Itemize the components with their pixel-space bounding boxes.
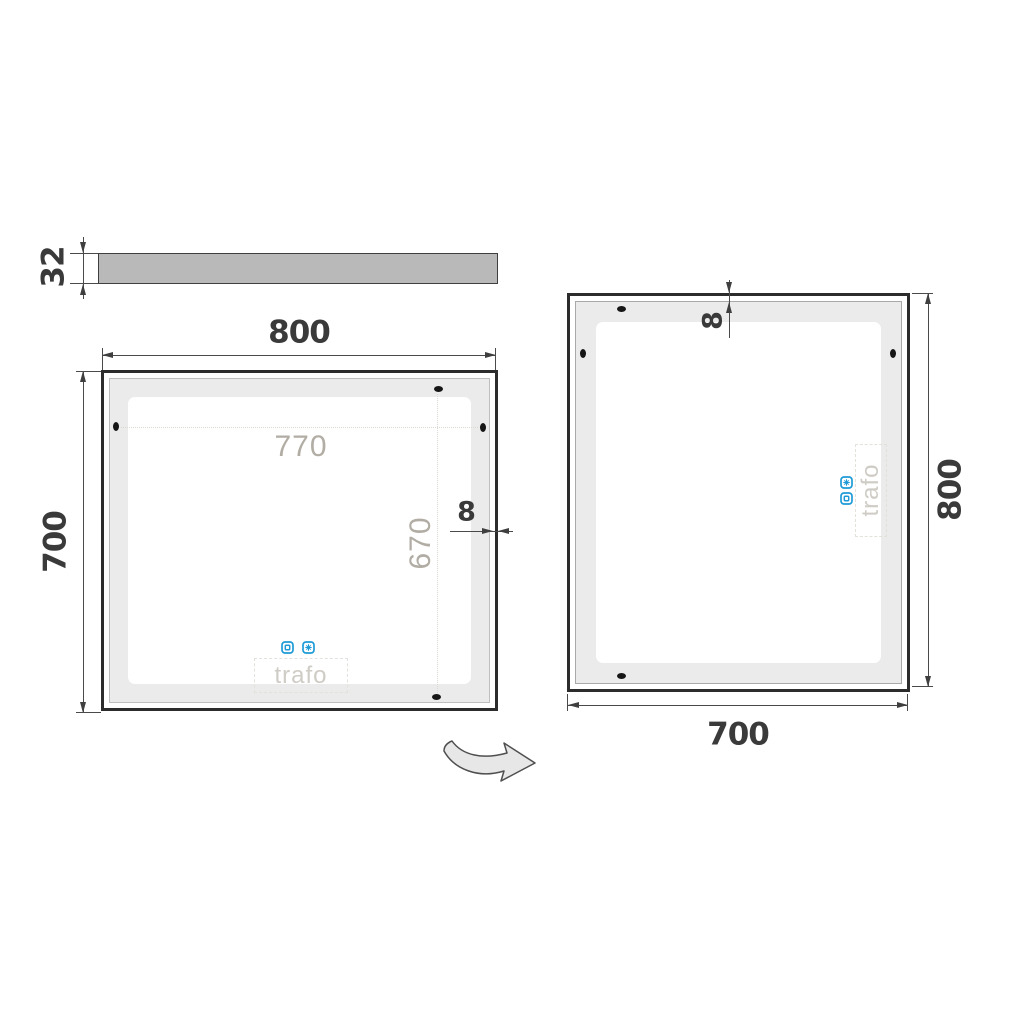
extension-line <box>495 348 496 370</box>
arrowhead-up-icon <box>925 293 931 304</box>
extension-line <box>70 253 98 254</box>
touch-sensor-icon <box>281 641 294 654</box>
dimension-line-width <box>102 355 496 356</box>
led-height-guide-line <box>437 394 438 693</box>
arrowhead-left-icon <box>568 702 579 708</box>
rotated-width-label: 700 <box>707 720 769 751</box>
edge-gap-label: 8 <box>700 312 727 330</box>
extension-line <box>102 348 103 370</box>
defog-icon <box>302 641 315 654</box>
extension-line <box>912 686 933 687</box>
rotate-arrow-icon <box>432 735 540 790</box>
extension-line <box>76 712 101 713</box>
rotated-height-label: 800 <box>936 459 967 521</box>
extension-line <box>567 694 568 711</box>
thickness-dimension-label: 32 <box>39 246 70 287</box>
trafo-label: trafo <box>274 664 327 688</box>
arrowhead-down-icon <box>726 282 732 293</box>
trafo-label: trafo <box>859 463 883 516</box>
defog-icon <box>840 476 853 489</box>
dimension-line-height <box>928 293 929 687</box>
fixing-point-dot <box>432 694 441 700</box>
fixing-point-dot <box>617 673 626 679</box>
extension-line <box>76 371 101 372</box>
dimension-line-width <box>568 705 908 706</box>
rotated-view-mirror-surface <box>596 322 881 663</box>
arrowhead-down-icon <box>80 242 86 253</box>
front-height-label: 700 <box>41 511 72 573</box>
fixing-point-dot <box>580 349 586 358</box>
led-width-guide-line <box>121 427 478 428</box>
fixing-point-dot <box>434 386 443 392</box>
fixing-point-dot <box>617 306 626 312</box>
extension-line <box>912 293 933 294</box>
front-width-label: 800 <box>268 318 330 349</box>
edge-gap-label: 8 <box>457 499 475 526</box>
led-width-label: 770 <box>274 432 327 462</box>
fixing-point-dot <box>113 422 119 431</box>
fixing-point-dot <box>890 349 896 358</box>
arrowhead-left-icon <box>498 528 509 534</box>
led-height-label: 670 <box>406 516 436 569</box>
arrowhead-up-icon <box>80 371 86 382</box>
arrowhead-left-icon <box>102 352 113 358</box>
extension-line <box>907 694 908 711</box>
arrowhead-up-icon <box>80 284 86 295</box>
touch-sensor-icon <box>840 492 853 505</box>
fixing-point-dot <box>480 423 486 432</box>
dimension-line-height <box>83 371 84 713</box>
mirror-technical-drawing: 32 770 670 8 800 700 trafo <box>0 0 1012 1012</box>
mirror-side-profile <box>98 253 498 284</box>
arrowhead-right-icon <box>482 528 493 534</box>
